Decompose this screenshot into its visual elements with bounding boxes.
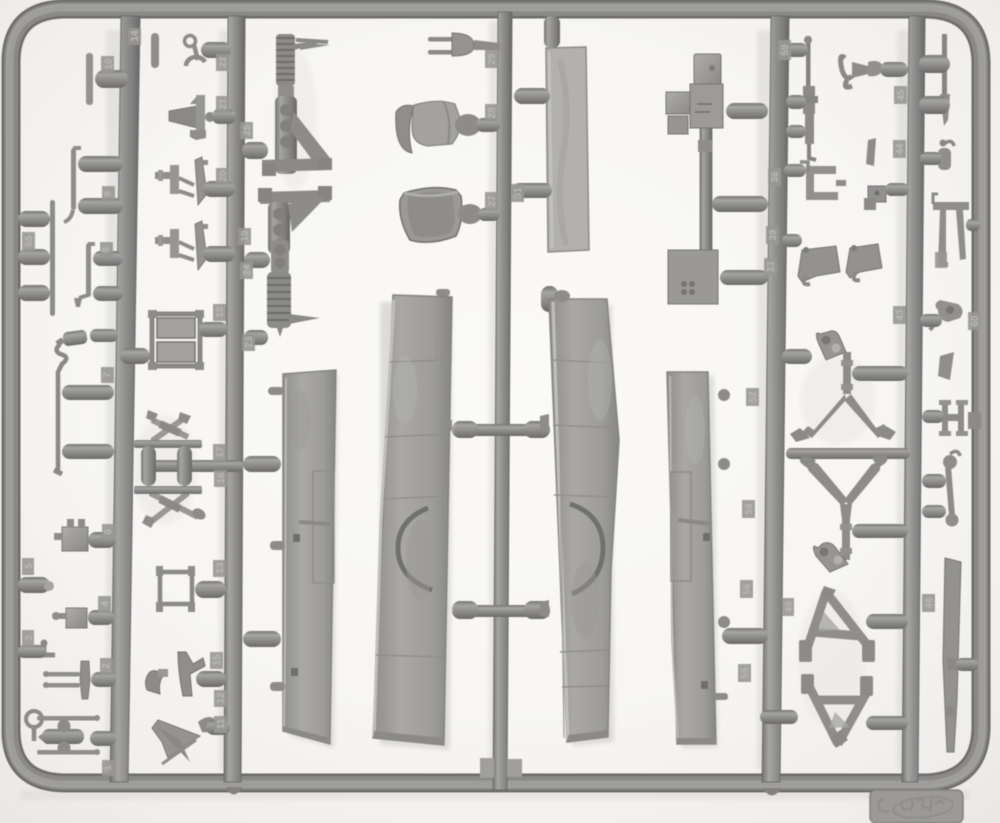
svg-text:14: 14 (130, 30, 141, 42)
svg-text:45: 45 (896, 89, 907, 101)
svg-text:13: 13 (215, 562, 226, 574)
svg-text:10: 10 (104, 58, 115, 70)
svg-text:7: 7 (102, 372, 113, 378)
svg-text:9: 9 (103, 191, 114, 197)
svg-text:18: 18 (215, 306, 226, 318)
svg-text:33: 33 (766, 261, 777, 273)
svg-text:20: 20 (218, 170, 229, 182)
svg-text:59: 59 (780, 44, 791, 56)
svg-text:15: 15 (212, 654, 223, 666)
svg-text:11: 11 (216, 718, 227, 729)
svg-text:17: 17 (215, 446, 226, 458)
svg-text:22: 22 (218, 56, 229, 68)
svg-text:58: 58 (744, 503, 755, 515)
svg-text:2: 2 (101, 663, 112, 669)
svg-text:8: 8 (101, 247, 112, 253)
svg-text:43: 43 (895, 309, 906, 321)
svg-text:21: 21 (218, 98, 229, 110)
svg-text:19: 19 (240, 230, 251, 242)
svg-text:55: 55 (24, 235, 35, 247)
svg-text:29: 29 (487, 53, 498, 65)
svg-text:49: 49 (784, 601, 795, 613)
svg-text:55: 55 (740, 667, 751, 679)
svg-text:6: 6 (103, 529, 114, 535)
svg-text:46: 46 (924, 597, 935, 609)
svg-text:39: 39 (768, 229, 779, 241)
svg-text:44: 44 (895, 143, 906, 155)
svg-text:25: 25 (242, 124, 253, 136)
svg-text:56: 56 (742, 583, 753, 595)
svg-text:12: 12 (216, 692, 227, 704)
svg-text:24: 24 (242, 264, 253, 276)
svg-text:3: 3 (24, 635, 35, 641)
svg-text:23: 23 (244, 336, 255, 348)
svg-text:27: 27 (487, 195, 498, 207)
svg-text:52: 52 (748, 391, 759, 403)
svg-text:60: 60 (970, 315, 981, 327)
svg-text:1: 1 (103, 765, 114, 771)
svg-text:36: 36 (770, 171, 781, 183)
svg-text:16: 16 (216, 472, 227, 484)
svg-text:31: 31 (513, 187, 524, 199)
svg-text:28: 28 (487, 107, 498, 119)
svg-text:5: 5 (24, 563, 35, 569)
svg-text:4: 4 (100, 601, 111, 607)
